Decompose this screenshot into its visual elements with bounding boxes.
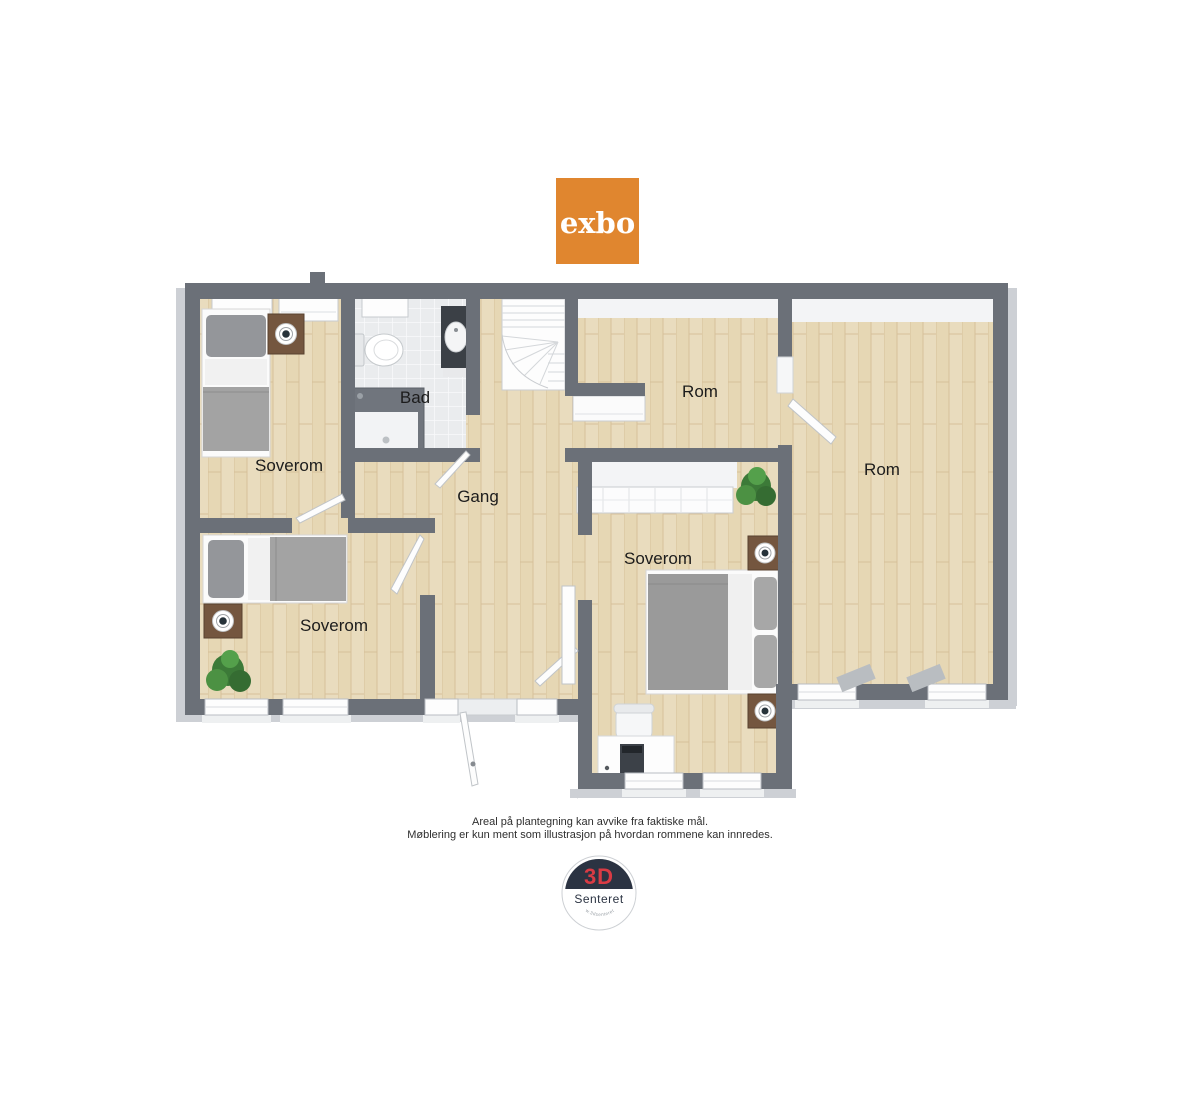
nightstand-lamp-icon (268, 314, 304, 354)
room-label-soverom-top-left: Soverom (255, 456, 323, 476)
nightstand-lamp-icon (204, 604, 242, 638)
exbo-logo-text: exbo (560, 202, 635, 240)
floorplan-image (0, 0, 1180, 1108)
single-bed-icon (203, 535, 347, 603)
rom-closet-icon (573, 396, 645, 421)
window-icon (202, 699, 271, 723)
floor-rom-top (578, 299, 778, 448)
entrance-door-icon (460, 712, 478, 786)
room-label-gang: Gang (457, 487, 499, 507)
toilet-icon (352, 334, 403, 366)
logo-3d-text: 3D (584, 864, 614, 889)
room-label-rom-right: Rom (864, 460, 900, 480)
room-label-soverom-middle: Soverom (624, 549, 692, 569)
disclaimer: Areal på plantegning kan avvike fra fakt… (0, 816, 1180, 841)
window-icon (622, 773, 686, 797)
exbo-logo: exbo (556, 178, 639, 264)
window-icon (280, 699, 351, 723)
disclaimer-line-1: Areal på plantegning kan avvike fra fakt… (0, 816, 1180, 829)
3d-senteret-logo: 3D Senteret www.3dsenteret.no (553, 848, 645, 940)
floor-rom-right (792, 299, 993, 684)
staircase-icon (502, 299, 565, 390)
room-label-rom-top: Rom (682, 382, 718, 402)
door-icon (562, 586, 575, 684)
room-label-soverom-bottom-left: Soverom (300, 616, 368, 636)
window-icon (700, 773, 764, 797)
logo-senteret-text: Senteret (574, 892, 624, 906)
window-icon (423, 699, 460, 723)
window-icon (925, 684, 989, 708)
floorplan-page: Soverom Bad Gang Rom Rom Soverom Soverom… (0, 0, 1180, 1108)
wardrobe-icon (577, 487, 733, 513)
double-bed-icon (646, 570, 778, 694)
disclaimer-line-2: Møblering er kun ment som illustrasjon p… (0, 829, 1180, 842)
room-label-bad: Bad (400, 388, 430, 408)
window-icon (515, 699, 559, 723)
single-bed-icon (202, 309, 270, 457)
